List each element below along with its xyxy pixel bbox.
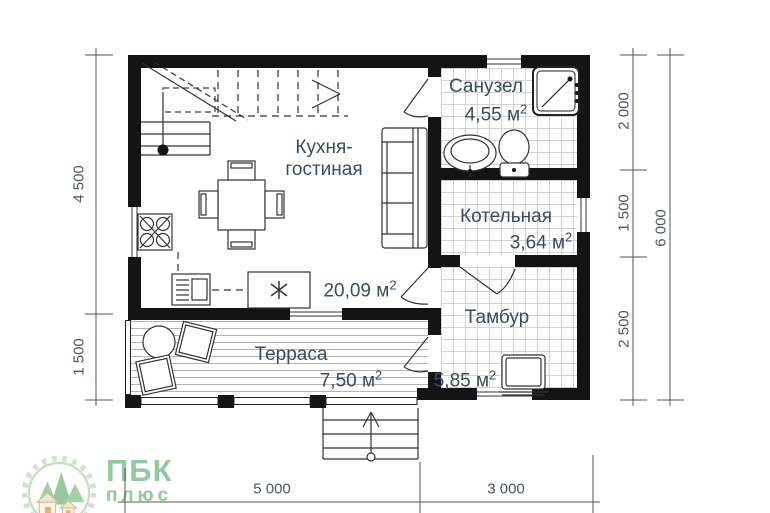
terrace-chair-1-icon <box>175 321 216 362</box>
toilet-icon <box>499 130 529 177</box>
room-label-bathroom: Санузел <box>449 76 523 98</box>
door-boiler-icon <box>460 267 515 294</box>
room-area-kitchen: 20,09 м2 <box>323 277 396 302</box>
door-kitchen-vestibule-icon <box>401 268 428 304</box>
washing-machine-icon <box>499 355 548 395</box>
dim-left-top: 4 500 <box>71 165 88 203</box>
room-area-vestibule: 5,85 м2 <box>434 367 497 392</box>
dim-right-middle: 1 500 <box>616 194 633 232</box>
dim-left-bottom: 1 500 <box>71 338 88 376</box>
dim-right-top: 2 000 <box>616 92 633 130</box>
dining-table-icon <box>199 161 284 249</box>
floor-plan-drawing <box>0 0 770 513</box>
floor-plan-page: ПБК плюс <box>0 0 770 513</box>
dim-right-total: 6 000 <box>653 209 670 247</box>
fridge-icon <box>248 272 310 308</box>
room-area-bathroom: 4,55 м2 <box>465 101 528 126</box>
room-label-terrace: Терраса <box>255 344 328 366</box>
kitchen-sink-unit-icon <box>172 274 210 305</box>
stove-icon <box>138 214 172 250</box>
terrace-table-icon <box>143 326 175 358</box>
room-label-boiler: Котельная <box>460 206 552 228</box>
terrace-chair-2-icon <box>136 355 176 395</box>
dim-bottom-left: 5 000 <box>253 481 291 498</box>
dim-bottom-right: 3 000 <box>487 481 525 498</box>
room-label-kitchen: Кухня- гостиная <box>285 137 362 181</box>
room-area-terrace: 7,50 м2 <box>320 367 383 392</box>
window-bathroom-top-icon <box>487 55 521 68</box>
stairs-direction-arrow-icon <box>312 80 340 108</box>
entrance-arrow-icon <box>363 412 379 461</box>
window-boiler-right-icon <box>577 198 590 232</box>
room-label-vestibule: Тамбур <box>465 307 530 329</box>
entrance-steps <box>323 408 418 461</box>
window-kitchen-south-icon <box>290 308 342 320</box>
door-terrace-vestibule-icon <box>404 337 428 372</box>
room-area-boiler: 3,64 м2 <box>510 229 573 254</box>
sofa-icon <box>382 128 427 248</box>
door-bathroom-icon <box>404 79 428 117</box>
dim-right-bottom: 2 500 <box>616 310 633 348</box>
shower-icon <box>533 67 579 115</box>
